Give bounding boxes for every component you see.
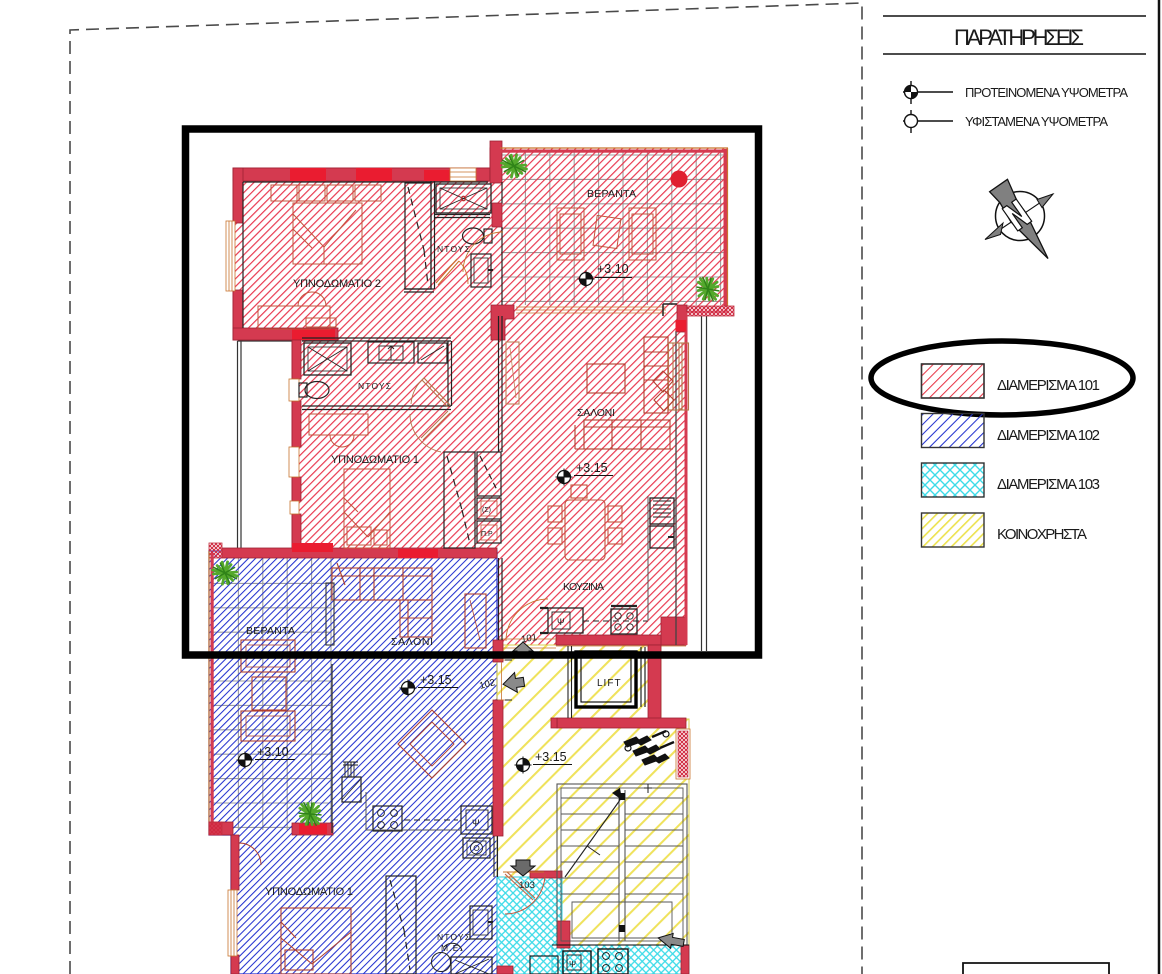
svg-text:ΠΡΟΤΕΙΝΟΜΕΝΑ ΥΨΟΜΕΤΡΑ: ΠΡΟΤΕΙΝΟΜΕΝΑ ΥΨΟΜΕΤΡΑ <box>965 85 1128 100</box>
svg-text:Μ.Ε.: Μ.Ε. <box>441 943 462 953</box>
svg-text:ΝΤΟΥΣ: ΝΤΟΥΣ <box>358 381 391 391</box>
svg-text:+3.15: +3.15 <box>420 673 452 687</box>
svg-text:Ψ: Ψ <box>472 818 480 828</box>
svg-text:ΔΙΑΜΕΡΙΣΜΑ 102: ΔΙΑΜΕΡΙΣΜΑ 102 <box>997 427 1100 444</box>
svg-text:ΝΤΟΥΣ: ΝΤΟΥΣ <box>437 932 470 942</box>
svg-text:+3.15: +3.15 <box>535 750 567 764</box>
svg-text:ΔΙΑΜΕΡΙΣΜΑ 103: ΔΙΑΜΕΡΙΣΜΑ 103 <box>997 476 1100 493</box>
svg-text:ΠΑΡΑΤΗΡΗΣΕΙΣ: ΠΑΡΑΤΗΡΗΣΕΙΣ <box>954 25 1084 50</box>
svg-text:ΥΦΙΣΤΑΜΕΝΑ ΥΨΟΜΕΤΡΑ: ΥΦΙΣΤΑΜΕΝΑ ΥΨΟΜΕΤΡΑ <box>965 114 1108 129</box>
svg-text:Π.Ρ: Π.Ρ <box>481 531 493 538</box>
svg-text:ΝΤΟΥΣ: ΝΤΟΥΣ <box>437 244 470 254</box>
svg-text:ΥΠΝΟΔΩΜΑΤΙΟ 1: ΥΠΝΟΔΩΜΑΤΙΟ 1 <box>265 886 353 898</box>
svg-text:Ψ: Ψ <box>557 617 565 627</box>
svg-text:103: 103 <box>519 880 535 891</box>
svg-text:ΣΑΛΟΝΙ: ΣΑΛΟΝΙ <box>577 407 615 419</box>
svg-text:(Σ): (Σ) <box>482 507 491 514</box>
svg-text:Ψ: Ψ <box>569 959 576 969</box>
svg-text:ΚΟΙΝΟΧΡΗΣΤΑ: ΚΟΙΝΟΧΡΗΣΤΑ <box>997 526 1087 543</box>
svg-text:ΥΠΝΟΔΩΜΑΤΙΟ 1: ΥΠΝΟΔΩΜΑΤΙΟ 1 <box>331 454 419 466</box>
svg-text:LIFT: LIFT <box>597 678 622 689</box>
svg-text:ΣΑΛΟΝΙ: ΣΑΛΟΝΙ <box>391 636 433 648</box>
svg-text:+3.10: +3.10 <box>257 745 289 759</box>
svg-text:+3.15: +3.15 <box>576 461 608 475</box>
svg-text:ΒΕΡΑΝΤΑ: ΒΕΡΑΝΤΑ <box>587 188 636 200</box>
svg-text:ΚΟΥΖΙΝΑ: ΚΟΥΖΙΝΑ <box>563 581 604 593</box>
svg-text:ΔΙΑΜΕΡΙΣΜΑ 101: ΔΙΑΜΕΡΙΣΜΑ 101 <box>997 377 1100 394</box>
svg-text:101: 101 <box>521 632 538 645</box>
svg-text:+3.10: +3.10 <box>597 262 629 276</box>
svg-text:ΒΕΡΑΝΤΑ: ΒΕΡΑΝΤΑ <box>246 625 295 637</box>
svg-text:ΥΠΝΟΔΩΜΑΤΙΟ 2: ΥΠΝΟΔΩΜΑΤΙΟ 2 <box>293 278 381 290</box>
